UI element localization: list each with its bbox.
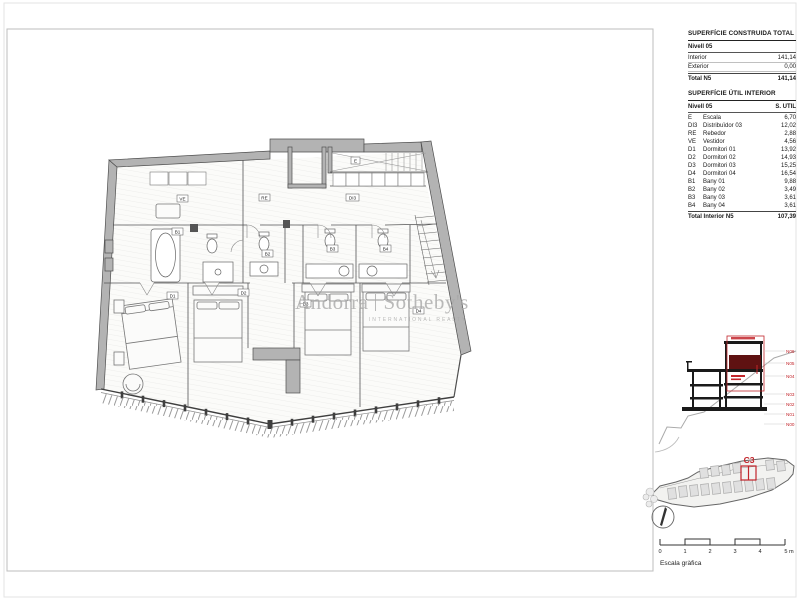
svg-text:VE: VE bbox=[179, 196, 185, 201]
table-row: D1 Dormitori 01 13,92 bbox=[688, 146, 796, 154]
room-label-b3: B3 bbox=[327, 245, 338, 252]
room-label-re: RE bbox=[259, 194, 270, 201]
svg-text:N00: N00 bbox=[786, 422, 795, 427]
table-row: D4 Dormitori 04 16,54 bbox=[688, 170, 796, 178]
brand-right: Sotheby's bbox=[383, 290, 468, 315]
svg-text:2: 2 bbox=[708, 549, 711, 555]
nightstand bbox=[114, 300, 124, 313]
svg-text:5 m: 5 m bbox=[784, 549, 794, 555]
site-plan: C3 bbox=[643, 437, 794, 528]
scale-tick-labels: 0 1 2 3 4 5 m bbox=[658, 549, 794, 555]
table-row: RE Rebedor 2,88 bbox=[688, 130, 796, 138]
table-row: B4 Bany 04 3,61 bbox=[688, 202, 796, 210]
svg-text:D2: D2 bbox=[241, 290, 247, 295]
svg-text:RE: RE bbox=[261, 195, 267, 200]
svg-text:0: 0 bbox=[658, 549, 661, 555]
vanity-b4 bbox=[359, 264, 407, 278]
table-total-row: Total Interior N5 107,39 bbox=[688, 211, 796, 221]
dresser-ve bbox=[156, 204, 180, 218]
nightstand bbox=[114, 352, 124, 365]
surface-built-title: SUPERFÍCIE CONSTRUIDA TOTAL bbox=[688, 30, 796, 41]
bed-d1 bbox=[121, 299, 181, 370]
section-structure bbox=[682, 341, 767, 411]
room-label-d2: D2 bbox=[238, 289, 249, 296]
svg-text:N02: N02 bbox=[786, 402, 795, 407]
svg-text:B3: B3 bbox=[330, 246, 336, 251]
brand-watermark-main: Andorra Sotheby's bbox=[295, 290, 469, 315]
brand-divider bbox=[375, 294, 376, 311]
room-label-b2: B2 bbox=[262, 250, 273, 257]
bed-d2 bbox=[194, 300, 242, 362]
svg-text:N05: N05 bbox=[786, 361, 795, 366]
svg-text:1: 1 bbox=[683, 549, 686, 555]
room-label-e: E bbox=[351, 157, 360, 164]
scale-bar bbox=[660, 539, 785, 545]
room-label-ve: VE bbox=[177, 195, 188, 202]
svg-text:N01: N01 bbox=[786, 412, 795, 417]
table-row: Exterior 0,00 bbox=[688, 63, 796, 72]
svg-text:B2: B2 bbox=[265, 251, 271, 256]
north-indicator bbox=[652, 506, 674, 528]
room-label-d1: D1 bbox=[167, 292, 178, 299]
svg-text:D1: D1 bbox=[170, 293, 176, 298]
brand-left: Andorra bbox=[295, 290, 368, 315]
armchair-d1 bbox=[123, 374, 143, 394]
surface-usable-table: SUPERFÍCIE ÚTIL INTERIOR Nivell 05 S. UT… bbox=[688, 90, 796, 221]
closet-d2 bbox=[193, 286, 243, 295]
graphic-scale: 0 1 2 3 4 5 m Escala gràfica bbox=[658, 539, 794, 567]
table-row: B1 Bany 01 9,88 bbox=[688, 178, 796, 186]
table-row: D2 Dormitori 02 14,93 bbox=[688, 154, 796, 162]
room-label-b1: B1 bbox=[172, 228, 183, 235]
table-row: B3 Bany 03 3,61 bbox=[688, 194, 796, 202]
table-header-row: Nivell 05 S. UTIL bbox=[688, 103, 796, 113]
surface-built-table: SUPERFÍCIE CONSTRUIDA TOTAL Nivell 05 In… bbox=[688, 30, 796, 83]
section-level-labels: N06 N05 N04 N03 N02 N01 N00 bbox=[786, 349, 795, 427]
svg-text:4: 4 bbox=[758, 549, 761, 555]
svg-text:3: 3 bbox=[733, 549, 736, 555]
scale-caption: Escala gràfica bbox=[660, 560, 702, 567]
room-label-b4: B4 bbox=[380, 245, 391, 252]
room-label-di3: DI3 bbox=[346, 194, 359, 201]
toilet-b2 bbox=[259, 232, 269, 251]
site-contour bbox=[655, 437, 679, 452]
table-row: B2 Bany 02 3,49 bbox=[688, 186, 796, 194]
floor-plan: E RE DI3 VE B1 B2 bbox=[96, 139, 471, 438]
brand-watermark: Andorra Sotheby's INTERNATIONAL REALTY bbox=[295, 290, 469, 323]
table-row: DI3 Distribuïdor 03 12,02 bbox=[688, 122, 796, 130]
surface-usable-title: SUPERFÍCIE ÚTIL INTERIOR bbox=[688, 90, 796, 101]
svg-text:DI3: DI3 bbox=[349, 195, 357, 200]
svg-text:B1: B1 bbox=[175, 229, 181, 234]
svg-text:B4: B4 bbox=[383, 246, 389, 251]
table-row: E Escala 6,70 bbox=[688, 114, 796, 122]
table-row: VE Vestidor 4,56 bbox=[688, 138, 796, 146]
section-level-highlight bbox=[729, 355, 761, 369]
built-level-label: Nivell 05 bbox=[688, 43, 712, 51]
svg-text:N04: N04 bbox=[786, 374, 795, 379]
toilet-b1 bbox=[207, 234, 217, 253]
building-section: N06 N05 N04 N03 N02 N01 N00 bbox=[659, 336, 796, 444]
section-leader-lines bbox=[764, 351, 785, 424]
drawing-sheet: E RE DI3 VE B1 B2 bbox=[0, 0, 800, 600]
svg-text:E: E bbox=[354, 158, 357, 163]
table-row: Interior 141,14 bbox=[688, 54, 796, 63]
brand-subtitle: INTERNATIONAL REALTY bbox=[369, 317, 469, 323]
svg-text:N06: N06 bbox=[786, 349, 795, 354]
table-row: D3 Dormitori 03 15,25 bbox=[688, 162, 796, 170]
table-total-row: Total N5 141,14 bbox=[688, 73, 796, 83]
site-unit-label: C3 bbox=[744, 455, 755, 465]
svg-text:N03: N03 bbox=[786, 392, 795, 397]
